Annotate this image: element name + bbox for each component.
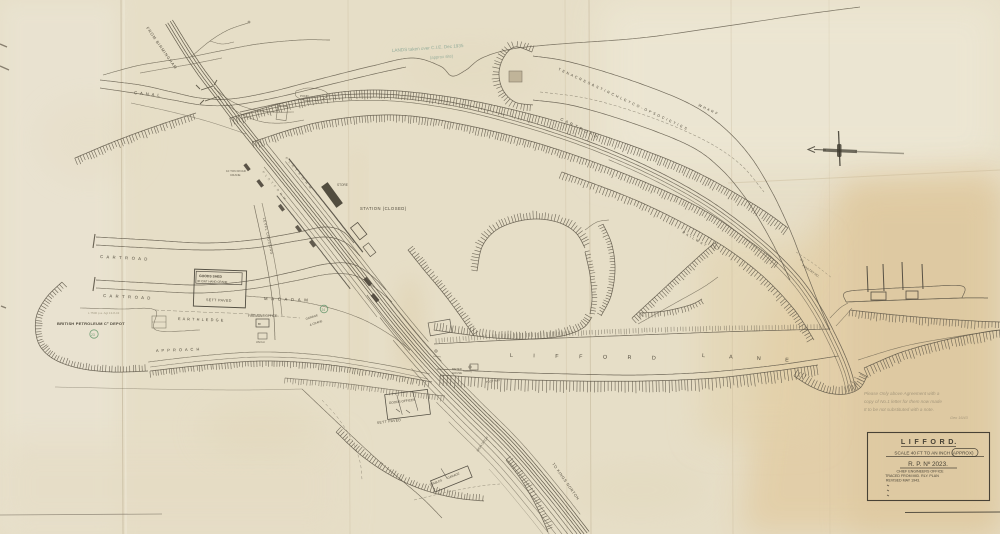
svg-text:CHIEF ENGINEERS OFFICE: CHIEF ENGINEERS OFFICE: [896, 470, 944, 474]
svg-text:CRANE: CRANE: [230, 173, 241, 177]
svg-text:R. P. Nº 2023.: R. P. Nº 2023.: [908, 461, 948, 468]
svg-text:24: 24: [322, 308, 326, 312]
svg-text:L 7500 p.a. Agt 13-8-43: L 7500 p.a. Agt 13-8-43: [88, 311, 120, 315]
svg-text:BRITISH PETROLEUM Cº DEPOT: BRITISH PETROLEUM Cº DEPOT: [57, 321, 125, 326]
svg-text:HOUSE: HOUSE: [452, 371, 462, 375]
svg-text:TRACED FROM MID. RLY. PLAN: TRACED FROM MID. RLY. PLAN: [885, 474, 939, 478]
svg-text:Geo 16/43: Geo 16/43: [950, 416, 969, 420]
svg-text:It to be not substituted with: It to be not substituted with a note.: [864, 407, 934, 412]
svg-text:L I F F O R D.: L I F F O R D.: [901, 437, 957, 446]
svg-text:B²: B²: [258, 322, 261, 326]
svg-text:POND: POND: [300, 94, 310, 98]
svg-text:GOODS SHED: GOODS SHED: [199, 274, 223, 279]
svg-text:copy of No.1 letter for them n: copy of No.1 letter for them now made: [864, 399, 942, 404]
svg-text:Please Only above Agreement wi: Please Only above Agreement with a: [864, 391, 940, 396]
svg-text:STATION (CLOSED): STATION (CLOSED): [360, 206, 407, 211]
svg-text:SCALE 40 FT TO AN INCH (APPRO: SCALE 40 FT TO AN INCH (APPROX): [894, 451, 974, 456]
svg-text:WEIGH: WEIGH: [256, 340, 265, 344]
svg-text:23: 23: [91, 333, 95, 337]
svg-text:FIREMANS OFFICE: FIREMANS OFFICE: [248, 314, 277, 318]
svg-text:STORE: STORE: [337, 183, 348, 187]
svg-text:REVISED MAY 1943.: REVISED MAY 1943.: [886, 479, 920, 483]
